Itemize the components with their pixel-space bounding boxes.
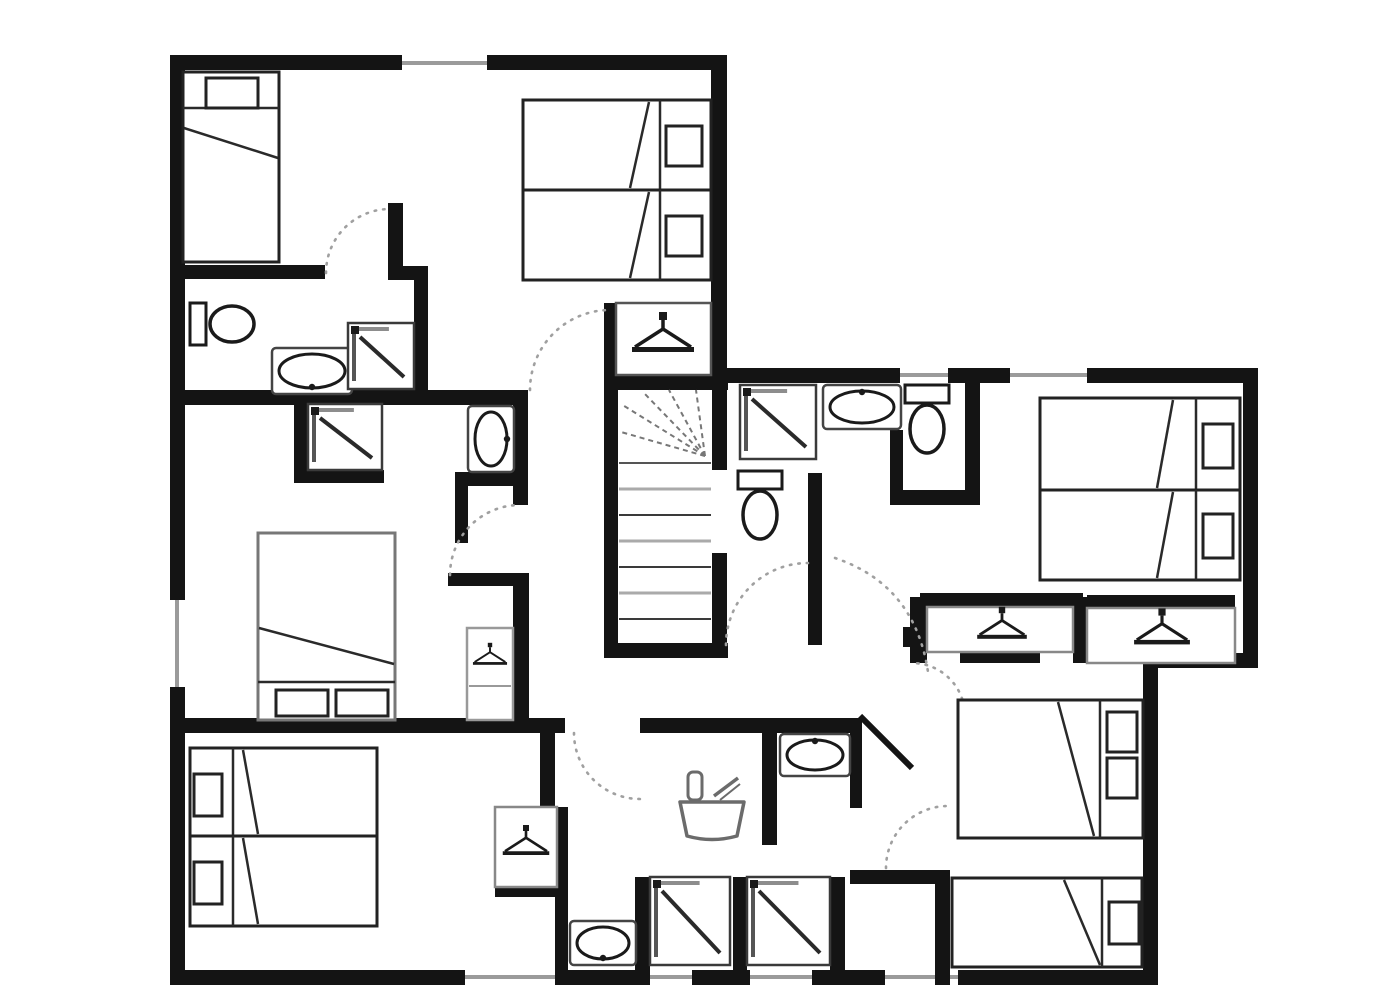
hanger-icon (523, 825, 529, 831)
tubroom-right-wall (850, 718, 862, 808)
shower-bath2 (740, 385, 816, 459)
exterior-bottom-wall-e (958, 970, 1158, 985)
pillow (1203, 424, 1233, 468)
floor-plan: upper-floor-plan (0, 0, 1399, 1000)
bedroom4-corridor-wall (850, 870, 935, 884)
wardrobe-top-right-b (1087, 608, 1235, 663)
bedroom4-left-wall (935, 870, 950, 985)
stairwell-top-wall (604, 375, 728, 390)
sink-bath2 (823, 385, 901, 429)
shower-alcove-bottom-wall (294, 470, 384, 483)
wardrobe-top-right-a (927, 607, 1073, 652)
leftwing-right-wall (711, 55, 727, 375)
stairwell-bottom-wall (604, 643, 728, 658)
tap-dot (812, 738, 818, 744)
basin-niche-bottom-wall (455, 472, 513, 486)
stairwell-right-wall-lower (712, 553, 727, 658)
tap-dot (859, 389, 865, 395)
floor-plan-drawing (0, 0, 1399, 1000)
ensuite1-right-wall (414, 266, 428, 392)
pillow (1107, 758, 1137, 798)
hanger-icon (659, 312, 667, 320)
toilet-ensuite1 (190, 303, 254, 345)
rightwing-top-wall-b (948, 368, 1010, 383)
bed-single-top-left (183, 72, 279, 262)
wardrobe-row-top-wall-b (1087, 595, 1235, 608)
pillow (666, 216, 702, 256)
pillow (194, 862, 222, 904)
wardrobe-above-stairs (616, 303, 711, 375)
vestibule-left-wall (540, 733, 555, 807)
bed-twin-top-a (523, 100, 711, 190)
bath2-right-wall (965, 383, 980, 505)
sink-tubroom (780, 734, 850, 776)
shower-alcove (308, 404, 382, 470)
wardrobe-row-top-wall-a (920, 593, 1083, 607)
wardrobe-middle-left (467, 628, 513, 720)
pillow (276, 690, 328, 716)
stairwell-right-wall-upper (712, 375, 727, 470)
tap-dot (504, 436, 510, 442)
hanger-icon (1158, 608, 1165, 615)
pillow (206, 78, 258, 108)
lower-corridor-wall-b (640, 718, 853, 733)
bed-single-bottom-right (952, 878, 1142, 967)
bed-twin-bottom-left-a (190, 748, 377, 836)
shower-stall-wall-b (733, 877, 747, 985)
pillow (1109, 902, 1139, 944)
shower-stall-wall-c (830, 877, 845, 985)
exterior-right-wall-upper (1243, 368, 1258, 668)
bed-twin-bottom-left-b (190, 836, 377, 926)
shower-ensuite1 (348, 323, 414, 389)
stairwell-left-wall (604, 390, 618, 658)
pillow (336, 690, 388, 716)
exterior-top-wall-b (487, 55, 727, 70)
toilet-wc (738, 471, 782, 539)
bed-double-middle-left (258, 533, 395, 720)
tap-dot (600, 955, 606, 961)
rightwing-top-wall-c (1087, 368, 1258, 383)
bed-twin-top-right-b (1040, 490, 1240, 580)
sink-basin-niche (468, 406, 514, 472)
exterior-bottom-wall-d (812, 970, 885, 985)
staircase (618, 390, 712, 643)
exterior-bottom-wall-a (170, 970, 465, 985)
hall-mid-wall (448, 573, 523, 586)
sink-bottom (570, 921, 636, 965)
toilet-bath2 (905, 385, 949, 453)
shower-alcove-left-wall (294, 400, 308, 477)
pillow (1107, 712, 1137, 752)
exterior-bottom-wall-b (558, 970, 647, 985)
bed-twin-top-right-a (1040, 398, 1240, 490)
rightwing-top-wall-a (711, 368, 900, 383)
sink-ensuite1 (272, 348, 352, 394)
pillow (666, 126, 702, 166)
tubroom-split-wall (762, 733, 777, 845)
hanger-icon (999, 607, 1005, 613)
exterior-right-wall-lower (1143, 653, 1158, 985)
pillow (1203, 514, 1233, 558)
pillow (194, 774, 222, 816)
stairs-wardrobe-left-wall (604, 303, 616, 375)
exterior-top-wall-a (170, 55, 402, 70)
shower-stall-a (650, 877, 730, 965)
tap-dot (309, 384, 315, 390)
hanger-icon (488, 643, 492, 647)
bed-twin-top-b (523, 190, 711, 280)
wardrobe-row-door-nub (903, 627, 910, 647)
wardrobe-bottom-left (495, 807, 557, 887)
hall-mid-wall-vertical (513, 573, 529, 730)
wc-divider-wall (808, 473, 822, 645)
bed-double-bottom-right (958, 700, 1143, 838)
shower-stall-b (747, 877, 830, 965)
ensuite1-top-wall (182, 265, 325, 279)
